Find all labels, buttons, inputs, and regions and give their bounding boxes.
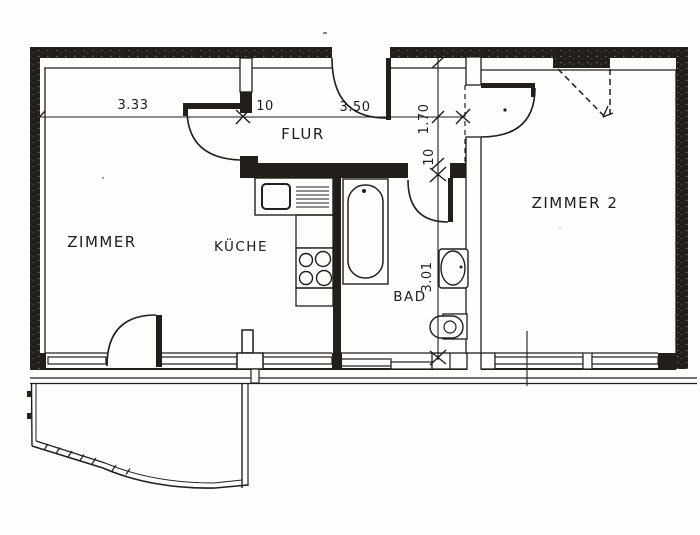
tap-dot [460, 266, 463, 269]
toilet-bowl [430, 316, 463, 338]
wall-kueche-bad [333, 178, 341, 353]
floor-plan-page: 3.33 10 3.50 1.70 10 3.01 ZIMMER KÜCHE F… [0, 0, 700, 535]
room-label-zimmer: ZIMMER [67, 233, 136, 251]
window-zimmer-left [48, 357, 106, 364]
window-zimmer-right [160, 357, 237, 364]
window-kueche [263, 357, 332, 364]
dimension-label-1-70: 1.70 [417, 104, 432, 135]
door-leaf [185, 103, 240, 109]
wall-flur-bad [450, 163, 467, 178]
dimension-label-3-01: 3.01 [420, 262, 435, 293]
hinge-dot [503, 108, 506, 111]
wall-stub-zimmer-kueche [242, 330, 253, 353]
room-label-bad: BAD [393, 289, 426, 305]
wall-zimmer-flur-upper [240, 58, 252, 92]
room-label-flur: FLUR [281, 125, 325, 143]
wall-pier [583, 353, 592, 369]
balcony-left-nub [27, 391, 31, 397]
sink-unit [255, 178, 333, 215]
room-label-kueche: KÜCHE [214, 237, 268, 255]
drain-dot [362, 189, 366, 193]
wall-bad-zimmer2 [466, 137, 481, 353]
door-leaf [481, 83, 535, 88]
door-leaf [448, 178, 453, 222]
window-bad-b [391, 362, 432, 369]
wall-stub-base [237, 353, 263, 369]
window-zimmer2-left [495, 357, 583, 364]
balcony-left-nub [27, 413, 31, 419]
wall-zimmer-flur-stub [240, 92, 252, 113]
wall-flur-kueche [240, 163, 408, 178]
room-label-zimmer2: ZIMMER 2 [532, 194, 619, 212]
door-leaf [156, 315, 162, 367]
wall-flur-zimmer2-top [466, 57, 481, 85]
wall-stub-foot [251, 369, 259, 383]
dimension-label-10-horizontal: 10 [256, 99, 274, 114]
wall-pier [332, 353, 342, 369]
dimension-label-3-50: 3.50 [340, 100, 371, 115]
dimension-label-3-33: 3.33 [118, 98, 149, 113]
wall-pier [481, 353, 495, 369]
window-bad-a [341, 359, 391, 366]
window-zimmer2-right [592, 357, 658, 364]
washbasin [439, 249, 468, 288]
wall-pier [658, 353, 676, 369]
dimension-label-10-vertical: 10 [422, 148, 437, 166]
toilet [430, 314, 467, 339]
door-leaf [386, 58, 391, 120]
floor-plan-canvas: 3.33 10 3.50 1.70 10 3.01 ZIMMER KÜCHE F… [0, 0, 700, 535]
